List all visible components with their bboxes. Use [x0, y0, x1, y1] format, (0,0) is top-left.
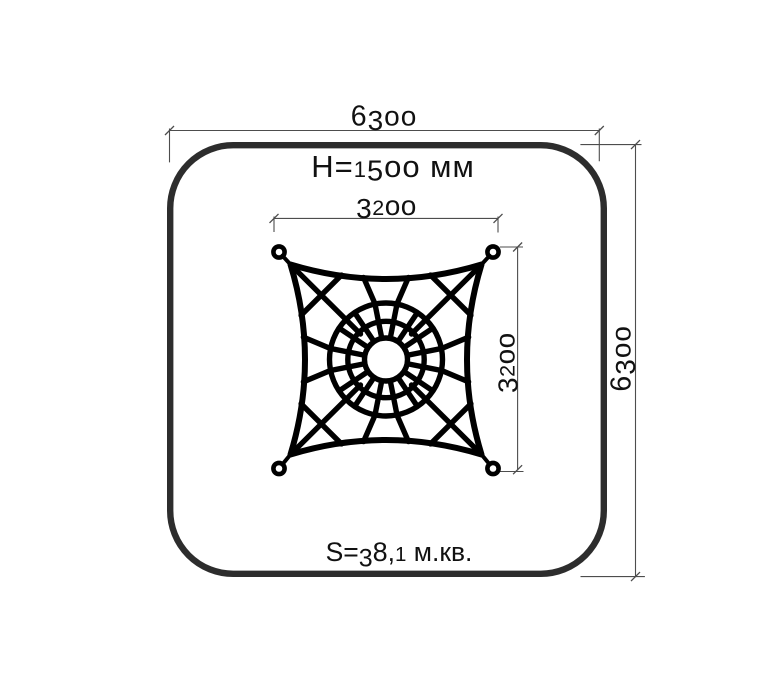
- svg-text:32oo: 32oo: [490, 332, 524, 393]
- svg-text:H=15oo мм: H=15oo мм: [311, 149, 475, 188]
- svg-text:63oo: 63oo: [351, 101, 418, 137]
- svg-text:S=38,1 м.кв.: S=38,1 м.кв.: [326, 537, 473, 573]
- svg-text:32oo: 32oo: [356, 190, 417, 224]
- svg-text:63oo: 63oo: [606, 325, 642, 392]
